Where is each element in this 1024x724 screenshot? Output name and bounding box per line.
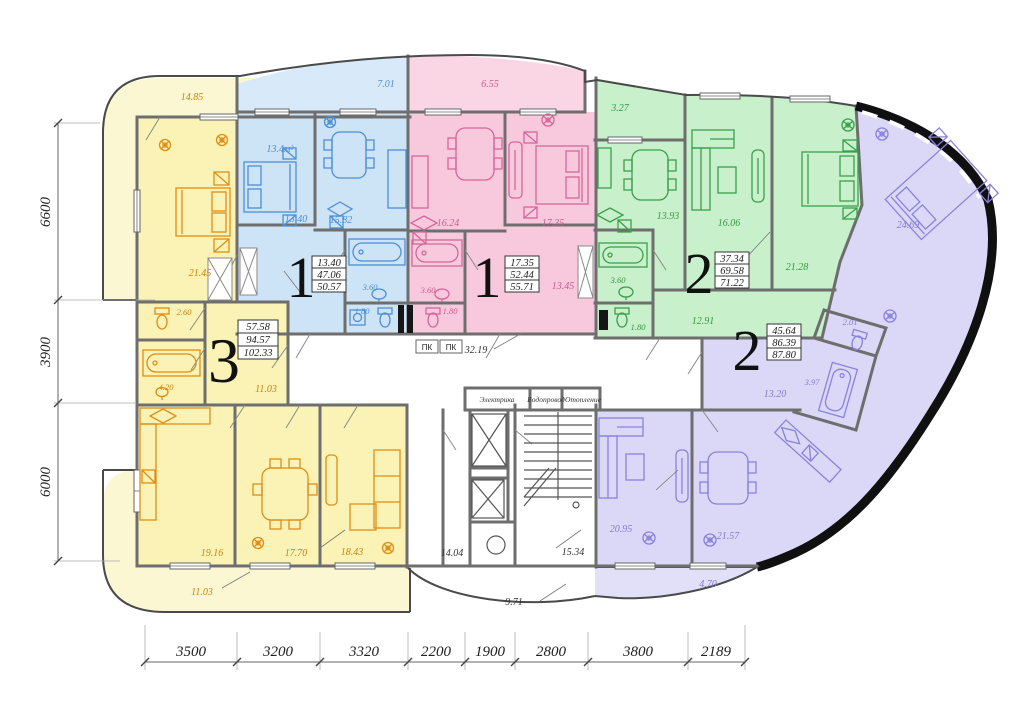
dimension-bottom: 3500 3200 3320 2200 1900 2800 3800 2189 xyxy=(141,625,749,670)
label-pink-kitchen: 16.24 xyxy=(437,218,460,229)
dim-bottom-2: 3320 xyxy=(348,644,380,660)
label-blue-bath: 3.60 xyxy=(362,282,379,292)
label-green-bedroom: 21.28 xyxy=(786,262,809,273)
label-green-balcony: 3.27 xyxy=(610,103,630,114)
label-yellow-bath: 4.20 xyxy=(159,382,175,392)
label-purple-hall: 13.20 xyxy=(764,389,787,400)
apartment-pink-area-row: 55.71 xyxy=(510,282,534,293)
label-purple-bedroom: 24.69 xyxy=(897,220,920,231)
label-shaft-heating: Отопление xyxy=(565,395,602,404)
apartment-purple-area-row: 87.80 xyxy=(772,350,796,361)
apartment-green-area-row: 69.58 xyxy=(720,266,744,277)
label-blue-bedroom-note: 13.4м² xyxy=(267,144,295,155)
label-purple-kitchen: 21.57 xyxy=(717,531,741,542)
label-blue-wc: 1.80 xyxy=(355,306,371,316)
garbage-chute-icon xyxy=(487,536,505,554)
apartment-yellow-number: 3 xyxy=(208,325,240,396)
label-yellow-bedroom: 21.45 xyxy=(189,268,212,279)
vent-shaft xyxy=(407,305,413,333)
floor-plan-page: 14.85 21.45 2.60 4.20 11.03 19.16 17.70 … xyxy=(0,0,1024,724)
apartment-green-area-row: 37.34 xyxy=(719,254,744,265)
vent-shaft xyxy=(599,310,608,330)
apartment-purple-area-row: 86.39 xyxy=(772,338,796,349)
apartment-green-area-row: 71.22 xyxy=(720,278,744,289)
apartment-yellow-area-row: 102.33 xyxy=(244,348,273,359)
apartment-blue-area-row: 50.57 xyxy=(317,282,341,293)
vent-shaft xyxy=(398,305,404,333)
label-yellow-living: 18.43 xyxy=(341,547,364,558)
label-purple-bath: 3.97 xyxy=(804,377,821,387)
apartment-green-number: 2 xyxy=(685,241,714,306)
stairs-icon xyxy=(524,412,592,508)
label-pink-hall: 13.45 xyxy=(552,281,575,292)
label-green-kitchen: 13.93 xyxy=(657,211,680,222)
floor-plan-drawing: 14.85 21.45 2.60 4.20 11.03 19.16 17.70 … xyxy=(0,0,1024,724)
apartment-yellow-area-row: 94.57 xyxy=(246,335,270,346)
apartment-purple-number: 2 xyxy=(733,318,762,383)
dim-bottom-5: 2800 xyxy=(536,644,567,660)
label-fire-cabinet-2: ПК xyxy=(446,343,457,352)
elevator-icon xyxy=(472,414,506,518)
dim-bottom-4: 1900 xyxy=(475,644,506,660)
apartment-blue-number: 1 xyxy=(287,245,316,310)
label-stairwell: 15.34 xyxy=(562,547,585,558)
apartment-pink-number: 1 xyxy=(473,245,502,310)
label-blue-kitchen: 15.82 xyxy=(330,215,353,226)
wardrobe-icon xyxy=(208,258,232,300)
label-pink-bath: 3.60 xyxy=(420,285,437,295)
label-pink-bedroom: 17.35 xyxy=(542,218,565,229)
apartment-pink-area-row: 52.44 xyxy=(510,270,534,281)
label-fire-cabinet-1: ПК xyxy=(422,343,433,352)
dim-bottom-1: 3200 xyxy=(262,644,294,660)
label-yellow-kitchen: 19.16 xyxy=(201,548,224,559)
label-elevator-lobby: 14.04 xyxy=(441,548,464,559)
wardrobe-icon xyxy=(240,248,257,295)
label-shaft-electrical: Электрика xyxy=(479,395,514,404)
label-green-bath: 3.60 xyxy=(610,275,627,285)
dim-bottom-3: 2200 xyxy=(421,644,452,660)
apartment-green-region xyxy=(595,78,862,338)
apartment-blue-area-row: 47.06 xyxy=(317,270,341,281)
label-yellow-balcony-bottom: 11.03 xyxy=(191,587,213,598)
label-blue-balcony: 7.01 xyxy=(377,79,395,90)
label-shaft-water: Водопровод xyxy=(527,395,565,404)
dim-bottom-0: 3500 xyxy=(175,644,207,660)
label-blue-bedroom: 13.40 xyxy=(285,214,308,225)
dim-left-1: 3900 xyxy=(38,337,54,369)
dim-bottom-7: 2189 xyxy=(701,644,732,660)
label-common-balcony: 9.71 xyxy=(505,597,523,608)
dim-left-2: 6000 xyxy=(38,467,54,498)
label-purple-balcony: 4.70 xyxy=(699,579,717,590)
label-yellow-balcony-top: 14.85 xyxy=(181,92,204,103)
wardrobe-icon xyxy=(578,246,593,298)
label-purple-wc: 2.01 xyxy=(843,317,858,327)
apartment-purple-area-row: 45.64 xyxy=(772,326,796,337)
label-yellow-hall: 11.03 xyxy=(255,384,277,395)
label-green-living: 16.06 xyxy=(718,218,741,229)
apartment-pink-area-row: 17.35 xyxy=(510,258,534,269)
dim-left-0: 6600 xyxy=(38,197,54,228)
label-corridor: 32.19 xyxy=(464,345,488,356)
apartment-yellow-area-row: 57.58 xyxy=(246,322,270,333)
label-green-hall: 12.91 xyxy=(692,316,715,327)
label-green-wc: 1.80 xyxy=(631,322,647,332)
dim-bottom-6: 3800 xyxy=(622,644,654,660)
label-pink-balcony: 6.55 xyxy=(481,79,499,90)
label-yellow-dining: 17.70 xyxy=(285,548,308,559)
label-yellow-wc: 2.60 xyxy=(177,307,193,317)
label-purple-living: 20.95 xyxy=(610,524,633,535)
apartment-blue-area-row: 13.40 xyxy=(317,258,341,269)
label-pink-wc: 1.80 xyxy=(443,306,459,316)
